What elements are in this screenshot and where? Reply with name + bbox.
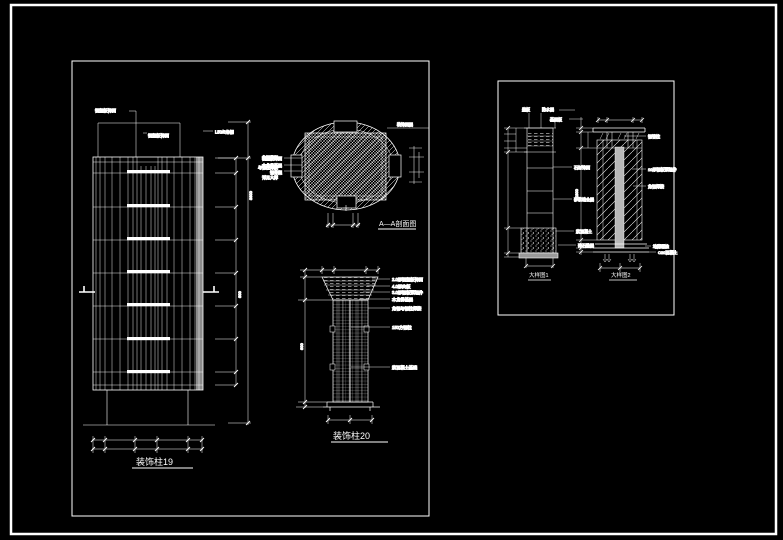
outer-border xyxy=(11,5,776,534)
section-top-label: 装饰面层 xyxy=(397,121,413,127)
detail1-top-label-1: 盖板 xyxy=(522,106,530,112)
title-section-aa: A—A剖面图 xyxy=(379,219,416,228)
elevation-label-finish-2: 铝塑板饰面 xyxy=(148,132,169,139)
column20-label-5: 角钢与钢柱焊接 xyxy=(392,305,422,312)
elevation-label-angle-steel: L50/5角钢 xyxy=(215,129,234,136)
cad-drawing: 铝塑板饰面 铝塑板饰面 L50/5角钢 3600 600 角钢骨架 与钢柱焊接 … xyxy=(0,0,783,540)
detail1-right-label-3: 素混凝土 xyxy=(576,228,592,234)
elevation-dim-outer: 3600 xyxy=(248,190,253,200)
column20-dim-left: 600 xyxy=(299,343,304,350)
column20-label-3: 3.0厚钢板预埋件 xyxy=(392,289,423,296)
detail1-right-label-1: 石材饰面 xyxy=(574,164,590,170)
detail1-top-label-2: 防水层 xyxy=(542,106,554,112)
elevation-joint-bands xyxy=(127,170,170,373)
column20-label-6: 150方钢柱 xyxy=(392,324,412,331)
section-label-3: 钢骨架 xyxy=(270,169,282,175)
title-column19: 装饰柱19 xyxy=(136,456,173,467)
detail1-top-label-3: 基层板 xyxy=(550,116,562,122)
detail2-bottom-label-2: C20混凝土 xyxy=(658,249,677,255)
title-detail2: 大样图2 xyxy=(611,271,631,279)
section-label-1: 铝塑板饰面 xyxy=(262,155,282,161)
detail2-bottom-label-1: 地脚螺栓 xyxy=(653,243,669,249)
elevation-label-finish-1: 铝塑板饰面 xyxy=(95,107,116,114)
column20-label-7: 素混凝土基础 xyxy=(392,364,417,371)
column20-label-1: 2.0厚铝塑板饰面 xyxy=(392,276,423,283)
title-column20: 装饰柱20 xyxy=(333,430,370,441)
column20-label-2: 4.0厚夹板 xyxy=(392,283,411,290)
cad-drawing-canvas: 铝塑板饰面 铝塑板饰面 L50/5角钢 3600 600 角钢骨架 与钢柱焊接 … xyxy=(0,0,783,540)
title-detail1: 大样图1 xyxy=(529,271,549,279)
column20-label-4: 木龙骨基层 xyxy=(392,296,413,303)
detail1-right-label-4: 碎石垫层 xyxy=(578,242,594,248)
section-a-a: 铝塑板饰面 木龙骨基层 钢骨架 装饰面层 A—A剖面图 xyxy=(262,121,429,229)
detail2-right-label-3: 角钢焊接 xyxy=(648,183,664,189)
column-detail-20: 600 2.0厚铝塑板饰面 4.0厚夹板 3.0厚钢板预埋件 木龙骨基层 角钢与… xyxy=(296,266,423,442)
column-elevation: 铝塑板饰面 铝塑板饰面 L50/5角钢 3600 600 角钢骨架 与钢柱焊接 … xyxy=(79,107,278,468)
detail2-right-label-1: 钢管柱 xyxy=(648,133,660,139)
detail2-right-label-2: 10厚钢板预埋件 xyxy=(648,166,676,172)
steel-core xyxy=(615,147,624,248)
detail2-dim-left: 1800 xyxy=(574,188,579,198)
elevation-dim-inner: 600 xyxy=(237,291,242,298)
section-label-2: 木龙骨基层 xyxy=(262,162,282,168)
elevation-shade-strip xyxy=(196,157,203,390)
